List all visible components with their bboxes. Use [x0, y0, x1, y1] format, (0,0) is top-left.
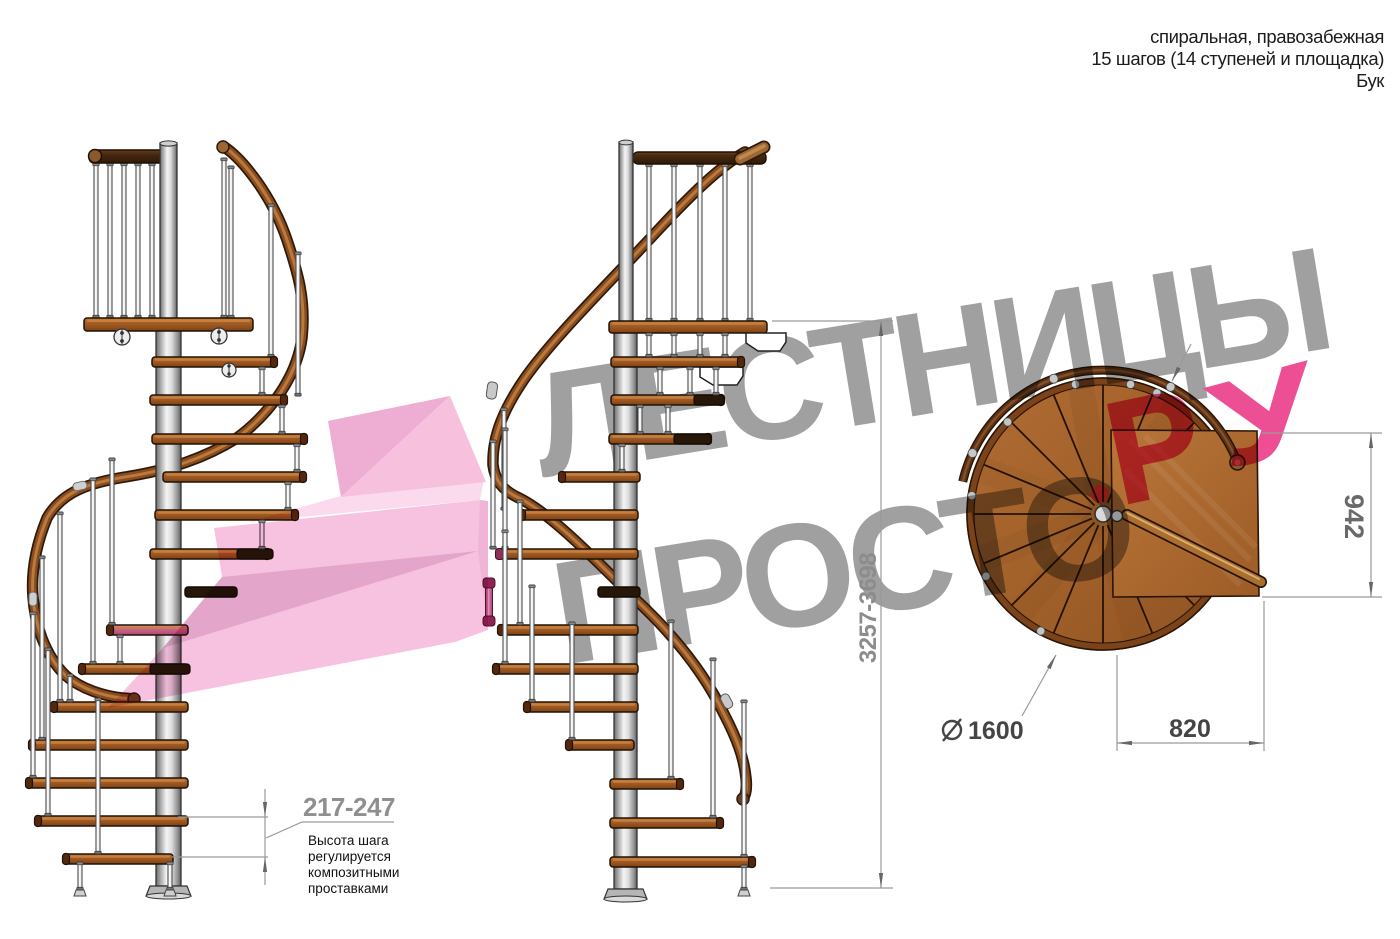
svg-text:композитными: композитными	[308, 865, 399, 880]
svg-text:942: 942	[1339, 494, 1369, 539]
svg-text:проставками: проставками	[308, 881, 388, 896]
svg-text:Бук: Бук	[1356, 70, 1385, 91]
svg-text:спиральная, правозабежная: спиральная, правозабежная	[1150, 26, 1384, 47]
svg-text:217-247: 217-247	[303, 792, 395, 822]
svg-text:регулируется: регулируется	[308, 849, 391, 864]
svg-text:1600: 1600	[968, 717, 1024, 745]
svg-text:Высота шага: Высота шага	[308, 833, 389, 848]
svg-text:15 шагов (14 ступеней и площад: 15 шагов (14 ступеней и площадка)	[1091, 48, 1384, 69]
svg-text:820: 820	[1169, 715, 1211, 743]
svg-text:3257-3698: 3257-3698	[855, 553, 882, 663]
